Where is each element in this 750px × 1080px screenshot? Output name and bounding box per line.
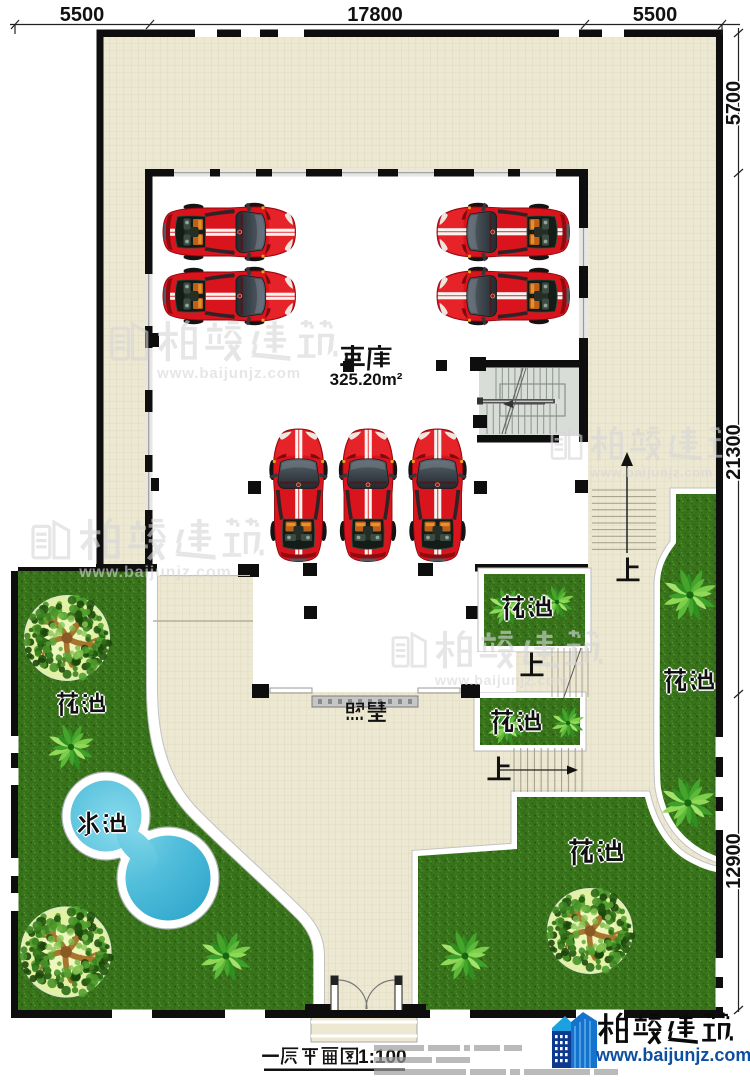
svg-text:www.baijunjz.com: www.baijunjz.com — [595, 1045, 750, 1065]
svg-text:www.baijunjz.com: www.baijunjz.com — [434, 672, 569, 688]
svg-text:17800: 17800 — [347, 4, 403, 26]
svg-text:www.baijunjz.com: www.baijunjz.com — [589, 465, 713, 480]
svg-text:5500: 5500 — [60, 4, 105, 26]
svg-text:www.baijunjz.com: www.baijunjz.com — [78, 564, 232, 581]
svg-text:5700: 5700 — [723, 81, 745, 126]
svg-text:21300: 21300 — [723, 424, 745, 480]
svg-text:12900: 12900 — [723, 833, 745, 889]
svg-text:www.baijunjz.com: www.baijunjz.com — [156, 365, 301, 382]
svg-text:325.20m²: 325.20m² — [330, 370, 403, 389]
svg-text:5500: 5500 — [633, 4, 678, 26]
